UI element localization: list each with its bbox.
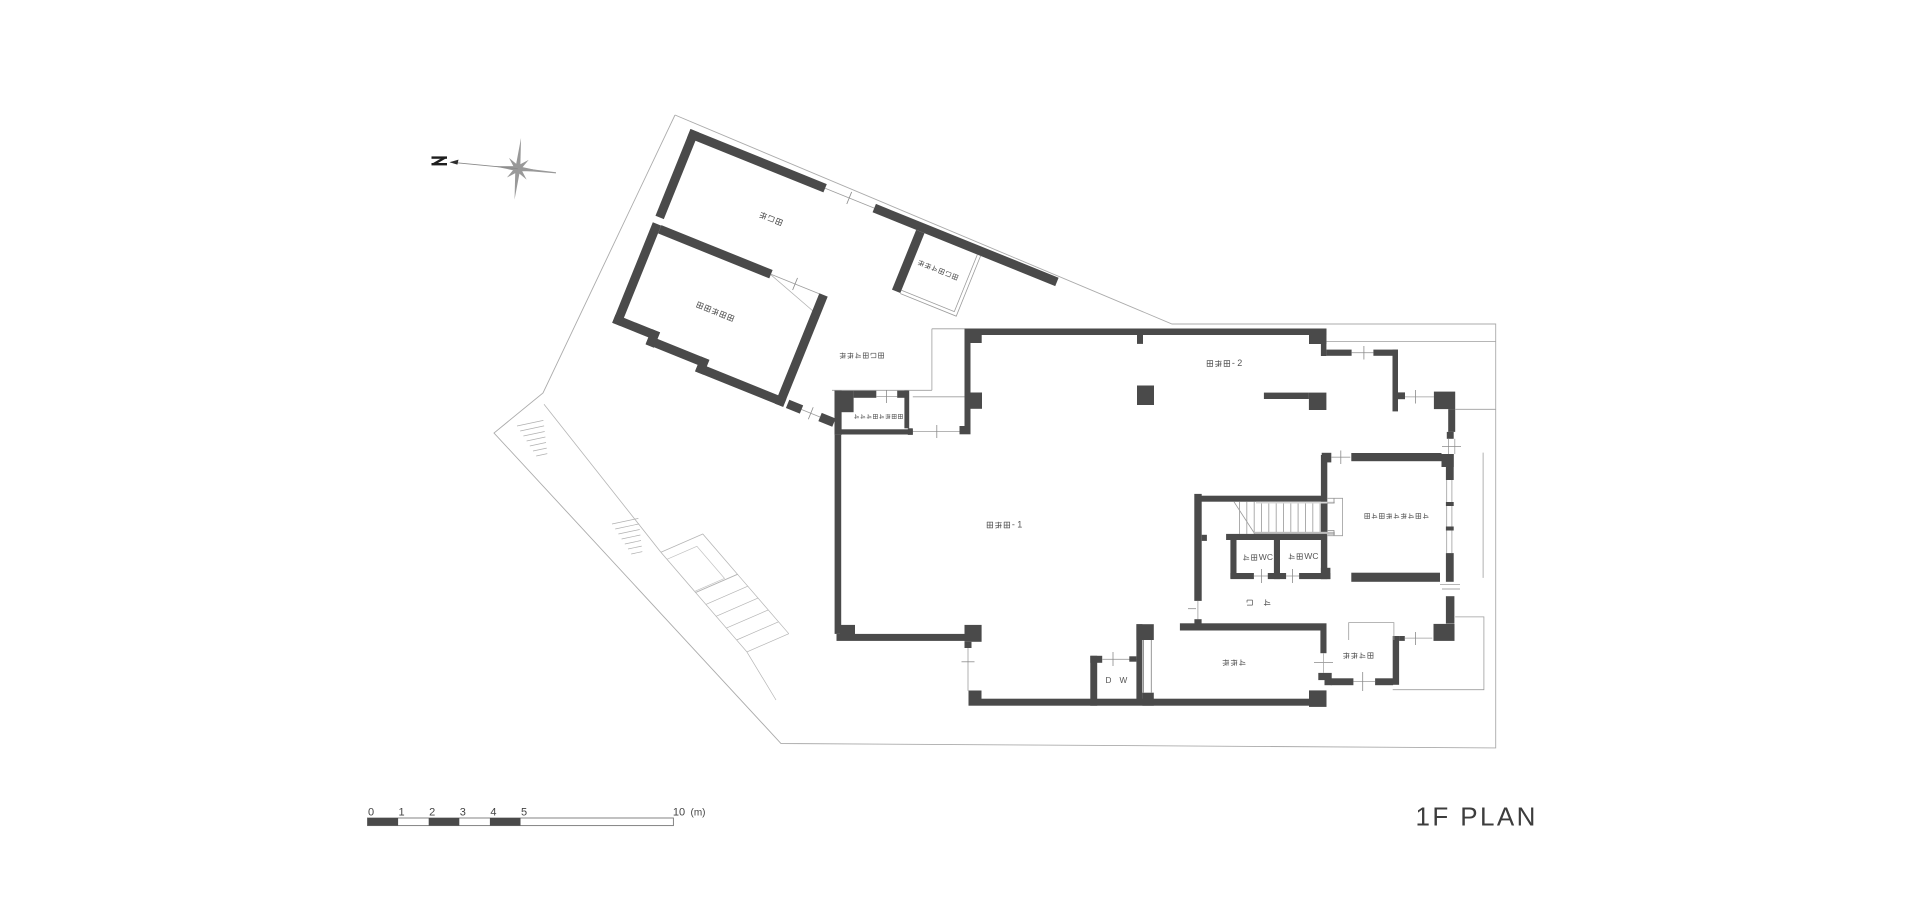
svg-text:1: 1 xyxy=(399,807,405,819)
svg-text:5: 5 xyxy=(521,807,527,819)
svg-text:1F PLAN: 1F PLAN xyxy=(1416,802,1538,832)
svg-text:WC: WC xyxy=(1259,552,1273,562)
svg-text:(m): (m) xyxy=(691,808,706,819)
svg-text:10: 10 xyxy=(673,807,685,819)
svg-text:WC: WC xyxy=(1304,551,1318,561)
svg-text:W: W xyxy=(1119,676,1127,685)
svg-text:0: 0 xyxy=(368,807,374,819)
svg-text:2: 2 xyxy=(429,807,435,819)
svg-text:D: D xyxy=(1105,676,1111,685)
svg-text:- 2: - 2 xyxy=(1232,358,1243,368)
svg-text:3: 3 xyxy=(460,807,466,819)
svg-text:4: 4 xyxy=(490,807,496,819)
svg-text:- 1: - 1 xyxy=(1012,520,1023,530)
